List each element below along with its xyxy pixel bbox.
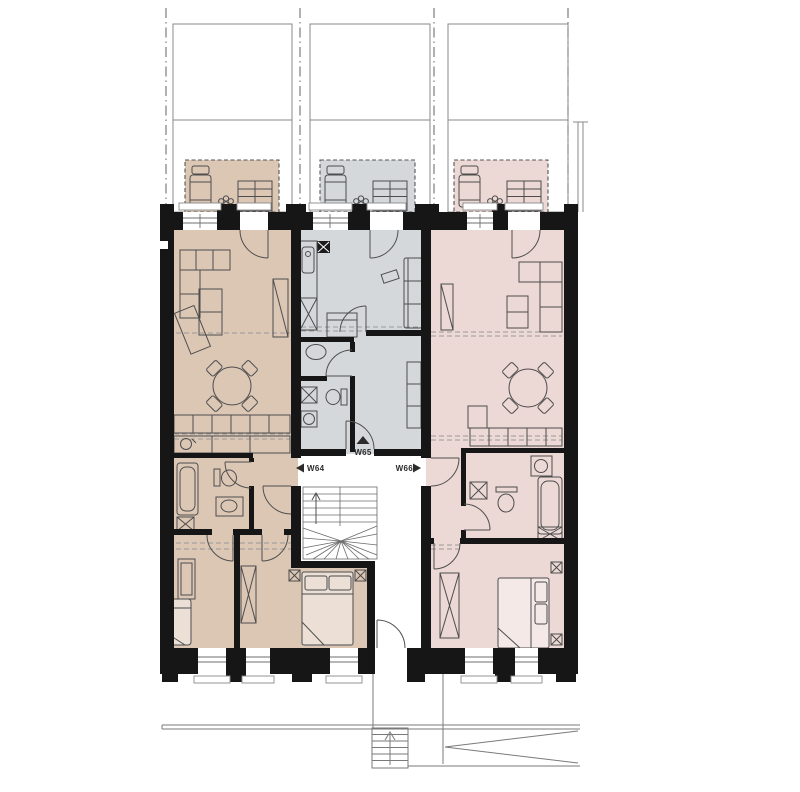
apartment-number: W65	[354, 448, 372, 457]
wall-understair	[294, 561, 375, 568]
exterior	[162, 674, 580, 768]
wall-right	[564, 212, 578, 674]
ramp-icon	[445, 731, 578, 763]
stair-icon	[303, 487, 377, 559]
window-bottom	[511, 648, 542, 683]
double-bed-icon	[498, 578, 549, 648]
window-bottom	[326, 648, 362, 683]
entrance-door	[375, 620, 407, 674]
window-bottom	[461, 648, 497, 683]
arrow-right-icon	[413, 464, 421, 473]
exterior-stair-icon	[372, 728, 408, 768]
wall-left	[160, 212, 174, 674]
double-bed-icon	[302, 572, 353, 645]
stair-up-arrow-icon	[312, 493, 320, 524]
garden-plots	[166, 8, 588, 212]
window-top	[309, 203, 352, 230]
wall-landing	[301, 449, 346, 456]
wall-corridor	[367, 568, 375, 648]
floor-plan-page: W64 W65 W66	[0, 0, 800, 792]
window-top	[463, 203, 497, 230]
apartment-number: W66	[396, 464, 414, 473]
window-bottom	[194, 648, 230, 683]
label-w64: W64	[296, 464, 325, 474]
window-top	[179, 203, 221, 230]
window-bottom	[242, 648, 274, 683]
wall-party-left	[291, 230, 301, 458]
floor-plan: W64 W65 W66	[0, 0, 800, 792]
wall-party-right	[421, 230, 431, 458]
stove-icon	[317, 241, 330, 253]
label-w66: W66	[396, 464, 421, 474]
apartment-number: W64	[307, 464, 325, 473]
